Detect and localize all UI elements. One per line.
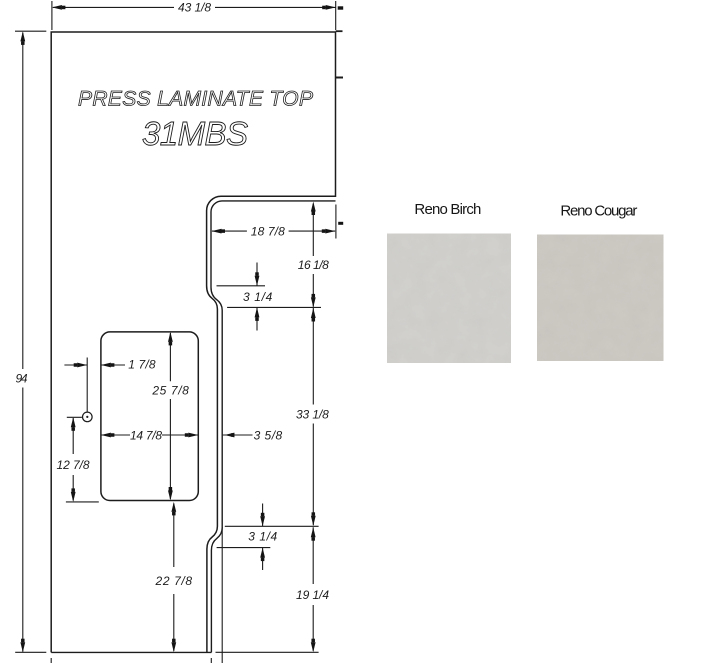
svg-text:Reno Cougar: Reno Cougar — [560, 203, 637, 220]
svg-text:33 1/8: 33 1/8 — [296, 407, 329, 421]
svg-text:14 7/8: 14 7/8 — [130, 428, 162, 442]
svg-text:3 5/8: 3 5/8 — [254, 428, 283, 442]
svg-text:25 7/8: 25 7/8 — [151, 384, 189, 398]
svg-text:PRESS LAMINATE TOP: PRESS LAMINATE TOP — [78, 88, 313, 111]
svg-text:1 7/8: 1 7/8 — [128, 357, 156, 371]
svg-text:22 7/8: 22 7/8 — [155, 574, 193, 588]
svg-text:3 1/4: 3 1/4 — [248, 530, 277, 544]
svg-text:94: 94 — [16, 371, 28, 385]
svg-text:Reno Birch: Reno Birch — [414, 201, 481, 218]
svg-text:31MBS: 31MBS — [142, 115, 248, 152]
svg-text:43 1/8: 43 1/8 — [178, 1, 211, 15]
svg-text:16 1/8: 16 1/8 — [298, 258, 329, 272]
svg-text:19 1/4: 19 1/4 — [296, 588, 329, 602]
svg-text:18 7/8: 18 7/8 — [251, 224, 285, 238]
svg-text:12 7/8: 12 7/8 — [57, 458, 90, 472]
svg-text:3 1/4: 3 1/4 — [243, 290, 273, 304]
